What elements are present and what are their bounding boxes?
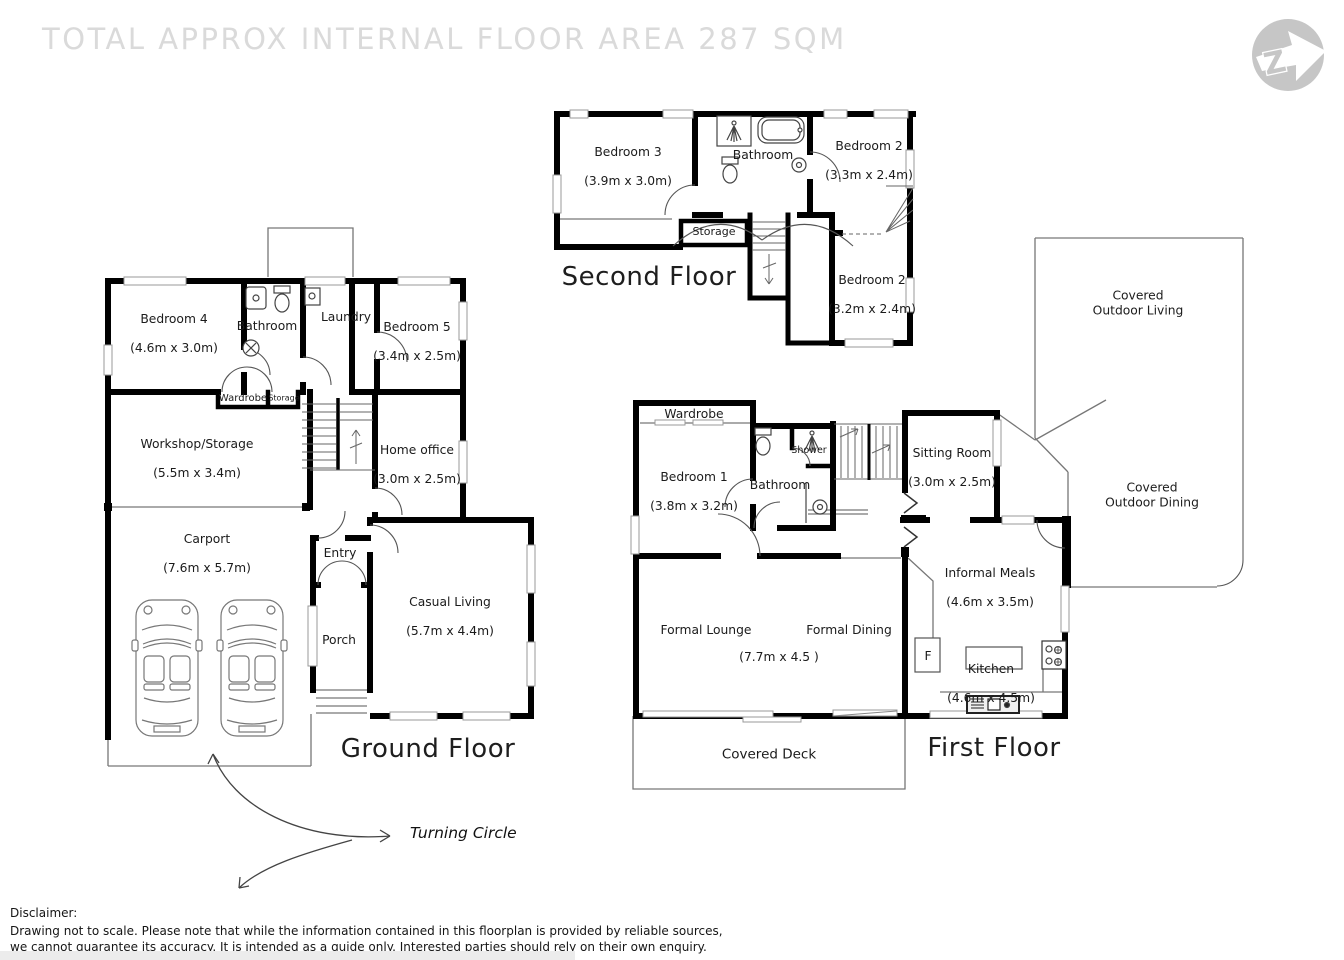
room-label-covered-deck: Covered Deck bbox=[722, 731, 816, 780]
fridge-alcove bbox=[908, 558, 933, 638]
room-label-first-wardrobe: Wardrobe bbox=[664, 392, 723, 436]
room-label-casual-living: Casual Living (5.7m x 4.4m) bbox=[406, 580, 494, 654]
wall-stub bbox=[901, 547, 909, 557]
room-label-entry: Entry bbox=[324, 531, 357, 575]
room-label-fridge: F bbox=[924, 634, 931, 678]
first-stairs bbox=[834, 424, 902, 480]
wall-nub bbox=[104, 503, 112, 511]
room-label-bedroom-3: Bedroom 3 (3.9m x 3.0m) bbox=[584, 130, 672, 204]
stove-icon bbox=[1042, 641, 1066, 669]
room-label-informal-meals: Informal Meals (4.6m x 3.5m) bbox=[945, 551, 1036, 625]
room-label-formal-lounge: Formal Lounge bbox=[661, 608, 752, 652]
room-label-bedroom-5: Bedroom 5 (3.4m x 2.5m) bbox=[373, 305, 461, 379]
floorplan-page: TOTAL APPROX INTERNAL FLOOR AREA 287 SQM… bbox=[0, 0, 1344, 960]
room-label-ground-wardrobe: Wardrobe bbox=[219, 381, 267, 417]
disclaimer-heading: Disclaimer: bbox=[10, 905, 723, 921]
room-label-formal-dining: Formal Dining bbox=[806, 608, 892, 652]
room-label-bedroom-2a: Bedroom 2 (3.3m x 2.4m) bbox=[825, 124, 913, 198]
outdoor-wall-segment bbox=[1062, 516, 1071, 588]
room-label-second-bathroom: Bathroom bbox=[733, 133, 793, 177]
room-label-sitting-room: Sitting Room (3.0m x 2.5m) bbox=[908, 431, 996, 505]
room-label-carport: Carport (7.6m x 5.7m) bbox=[163, 517, 251, 591]
wall-stub bbox=[901, 515, 926, 523]
porch-steps bbox=[316, 690, 367, 713]
room-label-lounge-dining-dims: (7.7m x 4.5 ) bbox=[739, 635, 819, 679]
room-label-ground-storage: Storage bbox=[268, 384, 299, 413]
room-label-first-bathroom: Bathroom bbox=[750, 463, 810, 507]
toilet-icon bbox=[755, 428, 771, 435]
wall-nub bbox=[302, 503, 310, 511]
room-label-bedroom-2b: Bedroom 2 (3.2m x 2.4m) bbox=[828, 258, 916, 332]
floor-label-second: Second Floor bbox=[562, 262, 737, 292]
room-label-bedroom-4: Bedroom 4 (4.6m x 3.0m) bbox=[130, 297, 218, 371]
roofline bbox=[997, 400, 1106, 440]
floor-label-first: First Floor bbox=[927, 733, 1060, 763]
room-label-home-office: Home office (3.0m x 2.5m) bbox=[373, 428, 461, 502]
room-label-bedroom-1: Bedroom 1 (3.8m x 3.2m) bbox=[650, 455, 738, 529]
scan-artifact-strip bbox=[0, 951, 575, 960]
room-label-covered-outdoor-living: Covered Outdoor Living bbox=[1093, 274, 1184, 333]
room-label-ground-bathroom: Bathroom bbox=[237, 304, 297, 348]
turning-circle-arrows bbox=[208, 754, 390, 888]
floor-label-ground: Ground Floor bbox=[341, 734, 516, 764]
room-label-laundry: Laundry bbox=[321, 295, 371, 339]
room-label-shower: Shower bbox=[791, 434, 826, 468]
turning-circle-label: Turning Circle bbox=[410, 824, 517, 842]
car-icon bbox=[132, 600, 287, 736]
room-label-porch: Porch bbox=[322, 618, 356, 662]
disclaimer-line-1: Drawing not to scale. Please note that w… bbox=[10, 923, 723, 939]
toilet-icon bbox=[274, 286, 290, 293]
ground-roof-outline bbox=[268, 228, 353, 277]
disclaimer: Disclaimer: Drawing not to scale. Please… bbox=[10, 905, 723, 955]
room-label-second-storage: Storage bbox=[692, 212, 735, 252]
room-label-workshop-storage: Workshop/Storage (5.5m x 3.4m) bbox=[141, 422, 254, 496]
room-label-kitchen: Kitchen (4.6m x 4.5m) bbox=[947, 647, 1035, 721]
room-label-covered-outdoor-dining: Covered Outdoor Dining bbox=[1105, 466, 1199, 525]
